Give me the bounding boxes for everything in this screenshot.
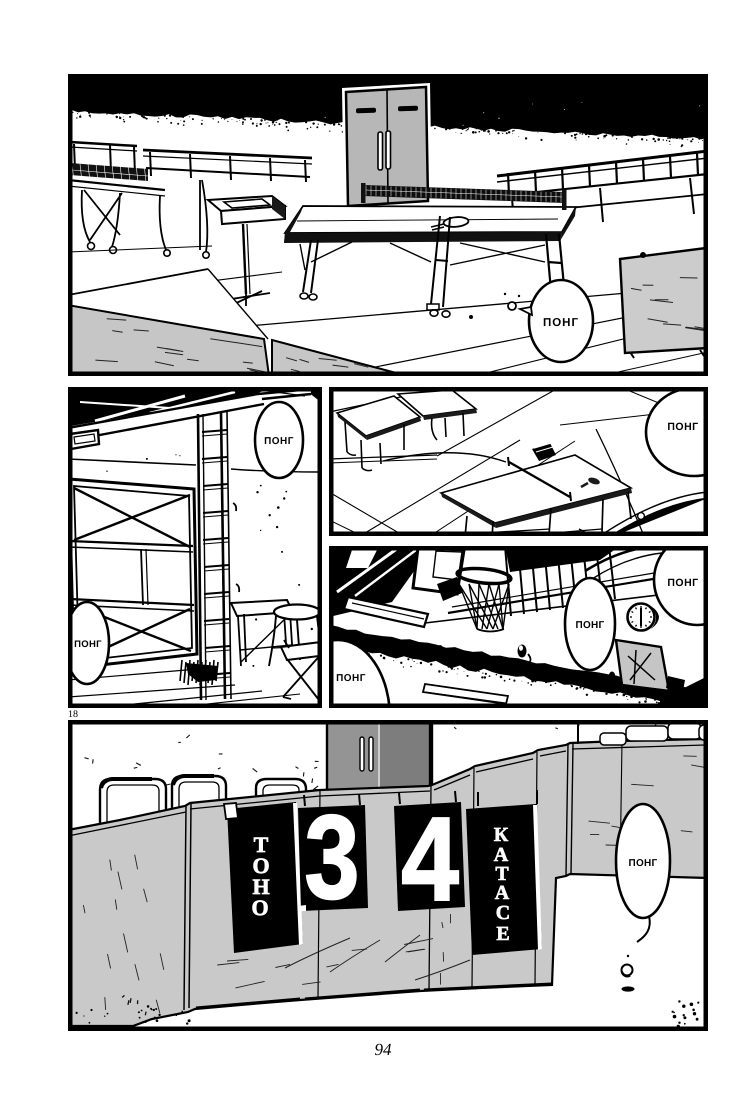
svg-text:К: К (494, 824, 509, 846)
svg-text:ПОНГ: ПОНГ (74, 639, 102, 650)
svg-text:А: А (495, 882, 510, 904)
svg-text:Е: Е (496, 923, 509, 945)
svg-text:ПОНГ: ПОНГ (575, 620, 604, 631)
svg-text:ПОНГ: ПОНГ (336, 673, 366, 684)
svg-text:ПОНГ: ПОНГ (667, 421, 698, 433)
svg-text:ПОНГ: ПОНГ (264, 436, 294, 447)
svg-text:О: О (251, 895, 268, 920)
svg-text:4: 4 (401, 793, 459, 926)
svg-text:3: 3 (305, 791, 360, 924)
svg-text:ПОНГ: ПОНГ (543, 317, 579, 329)
svg-text:ПОНГ: ПОНГ (628, 858, 657, 869)
svg-text:ПОНГ: ПОНГ (667, 577, 698, 589)
svg-text:С: С (496, 902, 510, 924)
svg-text:94: 94 (375, 1040, 393, 1059)
svg-text:18: 18 (68, 709, 78, 720)
